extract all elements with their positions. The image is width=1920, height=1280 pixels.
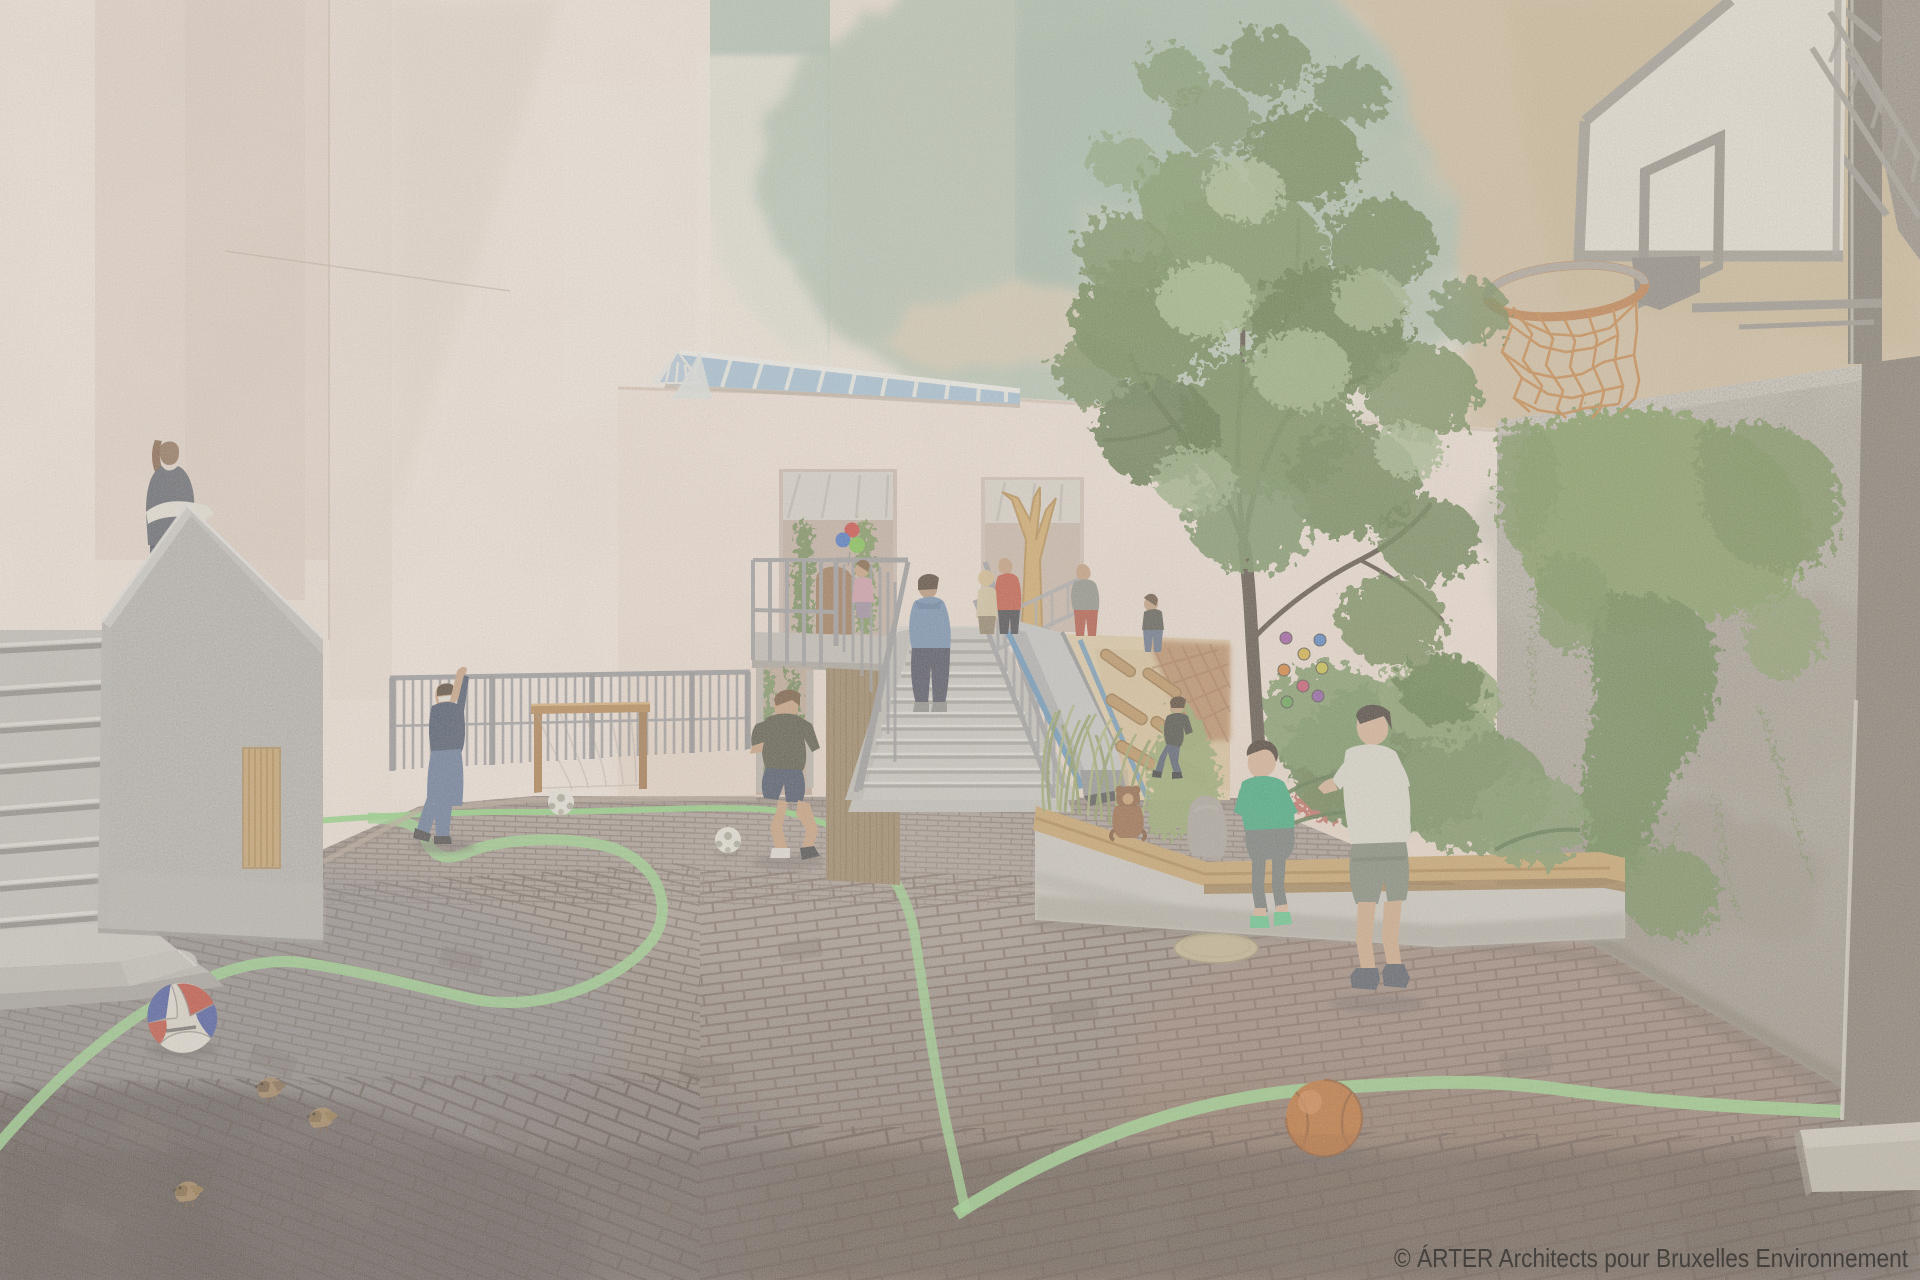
- svg-text:© ÁRTER Architects pour Bruxel: © ÁRTER Architects pour Bruxelles Enviro…: [1394, 1243, 1909, 1273]
